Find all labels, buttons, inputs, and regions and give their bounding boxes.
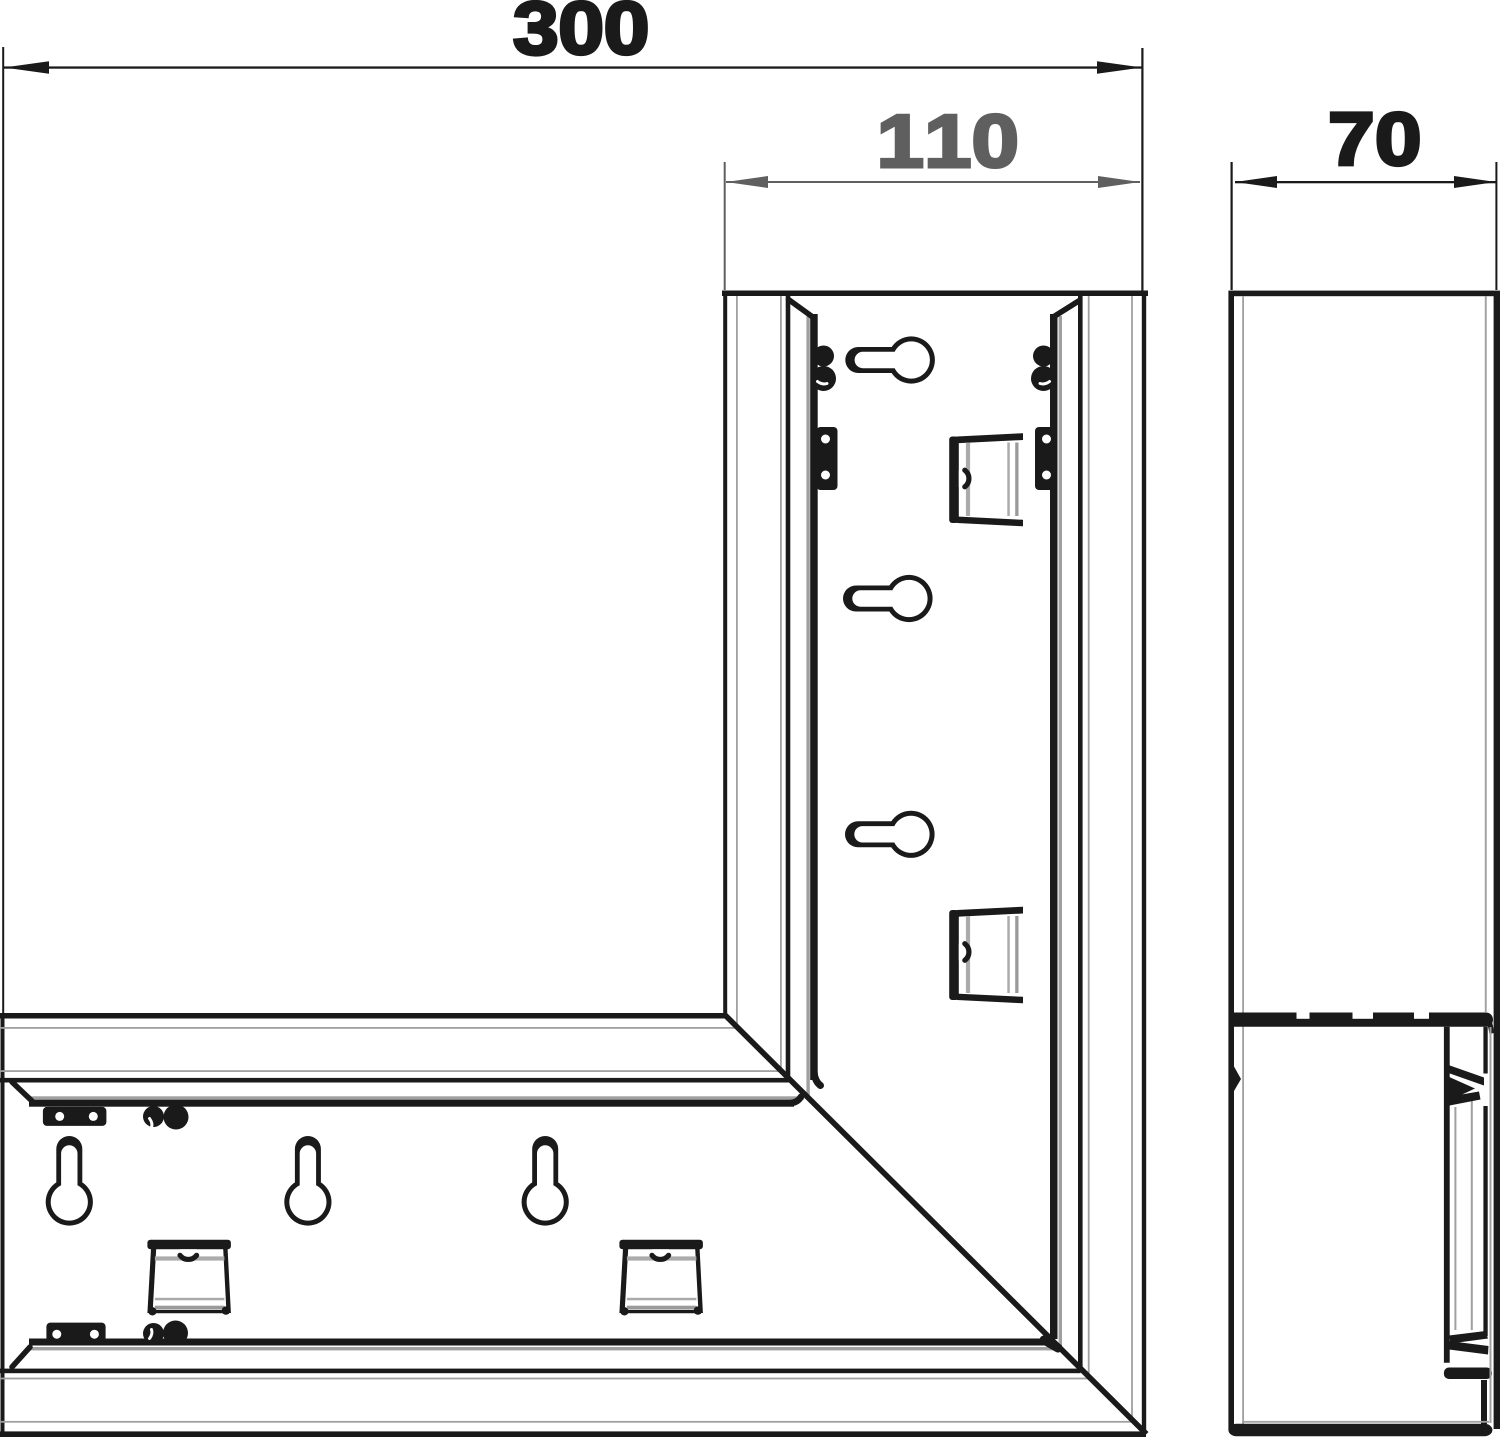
svg-text:0: 0: [972, 100, 1020, 184]
svg-text:1: 1: [877, 100, 925, 184]
svg-text:0: 0: [1375, 97, 1422, 181]
svg-text:0: 0: [604, 0, 650, 70]
svg-text:3: 3: [513, 0, 559, 70]
svg-text:7: 7: [1328, 97, 1375, 181]
svg-text:1: 1: [924, 100, 972, 184]
svg-text:0: 0: [558, 0, 604, 70]
